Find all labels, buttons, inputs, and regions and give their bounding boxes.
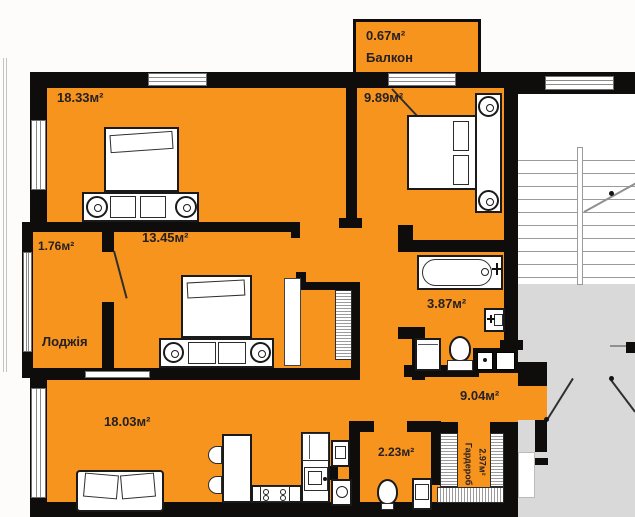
room-label-loggia-area: 1.76м² xyxy=(38,240,74,252)
sink-basin xyxy=(308,471,322,485)
room-label-living: 18.03м² xyxy=(104,415,150,428)
washer-drum xyxy=(336,486,348,498)
faucet-dot xyxy=(323,477,327,481)
wall xyxy=(504,422,518,503)
dining-table-icon xyxy=(222,434,252,503)
room-label-loggia-name: Лоджія xyxy=(42,335,88,348)
window xyxy=(31,120,46,190)
chair-icon xyxy=(208,446,222,464)
room-label-bedroom1: 18.33м² xyxy=(57,91,103,104)
wardrobe-shelves xyxy=(490,433,504,487)
toilet-icon xyxy=(377,479,398,505)
valve-cross xyxy=(490,315,492,323)
room-label-bedroom3: 13.45м² xyxy=(142,231,188,244)
shaft-niche xyxy=(518,452,535,498)
toilet-icon xyxy=(449,336,471,362)
nightstand-icon xyxy=(250,342,271,363)
sofa-cushion xyxy=(83,473,119,500)
toilet-tank xyxy=(447,360,473,371)
wall xyxy=(291,222,300,238)
balcony-door xyxy=(388,73,456,86)
wall xyxy=(330,466,338,480)
sink-basin xyxy=(415,484,429,500)
vanity-counter xyxy=(496,352,515,370)
stair-direction-dot xyxy=(609,191,614,196)
wall xyxy=(398,225,413,252)
wall xyxy=(102,302,114,378)
sofa-cushion xyxy=(120,473,156,500)
wall xyxy=(626,342,635,353)
bed-pillow xyxy=(187,279,246,298)
bed-cushion xyxy=(188,342,216,364)
burner-icon xyxy=(280,495,286,501)
oven-door xyxy=(335,446,346,459)
nightstand-icon xyxy=(163,342,184,363)
bathtub-faucet xyxy=(496,263,498,275)
room-label-wc: 2.23м² xyxy=(378,446,414,458)
room-label-balcony-name: Балкон xyxy=(366,51,413,64)
bed-pillow xyxy=(453,121,469,151)
landing-arrow-dot xyxy=(609,376,614,381)
wall xyxy=(351,290,360,380)
wall xyxy=(518,362,547,386)
nightstand-icon xyxy=(478,96,499,117)
fridge-handle xyxy=(309,435,310,459)
wall xyxy=(490,422,518,433)
faucet-dot xyxy=(483,358,487,362)
bathtub-drain xyxy=(481,268,489,276)
washer-panel xyxy=(418,344,438,345)
wall xyxy=(30,368,360,380)
wall xyxy=(535,420,547,452)
loggia-glazing xyxy=(23,252,32,352)
landing-tick-line xyxy=(610,345,626,347)
nightstand-icon xyxy=(175,196,197,218)
balcony: 0.67м² Балкон xyxy=(353,19,481,74)
shelf-unit xyxy=(335,290,352,360)
window xyxy=(148,73,207,86)
neighbor-wall-line xyxy=(3,58,7,372)
stair-rail xyxy=(577,147,583,285)
wardrobe-shelves xyxy=(437,487,504,503)
toilet-base xyxy=(381,503,394,510)
room-label-wardrobe-area: 2.97м² xyxy=(478,448,487,475)
wall xyxy=(339,218,362,228)
room-label-bedroom2: 9.89м² xyxy=(364,91,403,104)
room-label-hallway: 9.04м² xyxy=(460,389,499,402)
window xyxy=(31,388,46,498)
built-in-wardrobe xyxy=(284,278,301,366)
room-label-bathroom: 3.87м² xyxy=(427,297,466,310)
nightstand-icon xyxy=(86,196,108,218)
chair-icon xyxy=(208,476,222,494)
bed-cushion xyxy=(110,196,136,218)
fridge-icon xyxy=(302,433,329,461)
wall xyxy=(398,240,506,252)
room-label-wardrobe-name: Гардероб xyxy=(464,443,473,486)
wall xyxy=(504,86,518,350)
wall xyxy=(296,282,360,290)
wall xyxy=(102,228,114,252)
nightstand-icon xyxy=(478,190,499,211)
floor-plan: 0.67м² Балкон xyxy=(0,0,635,517)
wall xyxy=(346,85,357,220)
bed-cushion xyxy=(218,342,246,364)
washing-machine-icon xyxy=(415,338,441,371)
window xyxy=(545,76,614,90)
wall-niche xyxy=(85,371,150,378)
wall xyxy=(441,422,458,433)
wardrobe-shelves xyxy=(440,433,458,487)
bed-pillow xyxy=(453,155,469,185)
burner-icon xyxy=(263,495,269,501)
room-label-balcony-area: 0.67м² xyxy=(366,29,405,42)
bed-cushion xyxy=(140,196,166,218)
towel-warmer-inner xyxy=(494,314,503,326)
